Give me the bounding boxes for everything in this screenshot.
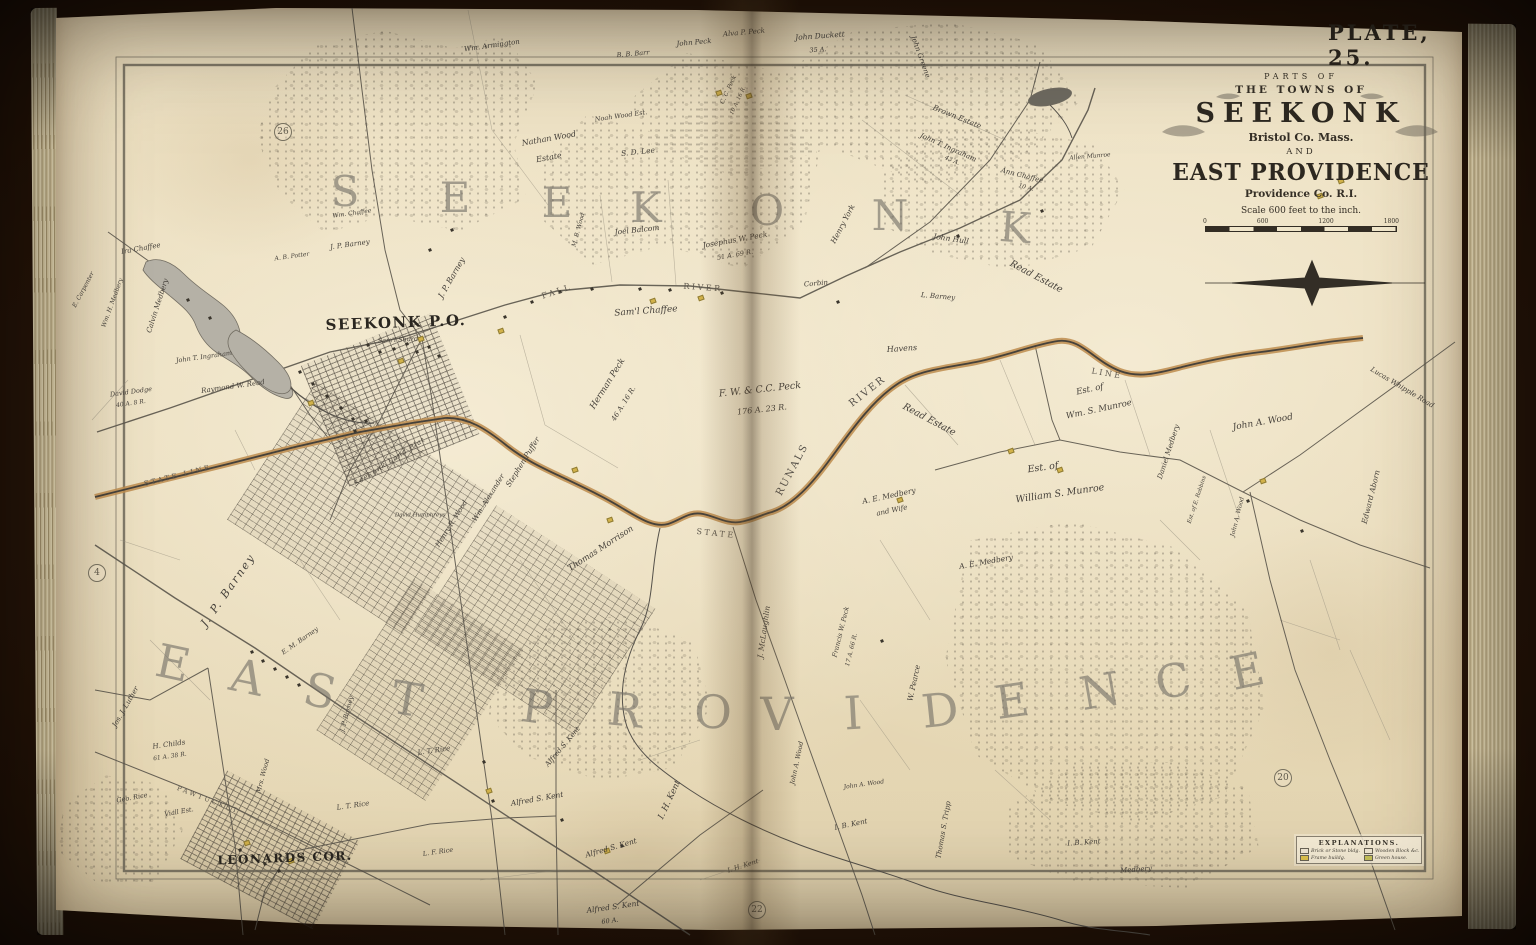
adjoining-plate-ref: 4 — [88, 564, 106, 582]
scale-tick-labels: 060012001800 — [1203, 218, 1399, 225]
state-line-highlight — [95, 338, 1363, 525]
cartouche-county-providence: Providence Co. R.I. — [1158, 188, 1444, 200]
legend-title: EXPLANATIONS. — [1300, 839, 1418, 847]
cartouche-parts-of: PARTS OF — [1158, 72, 1444, 81]
legend-item: Frame buildg. — [1300, 855, 1360, 861]
scale-bar: 060012001800 — [1203, 218, 1399, 232]
cartouche-county-bristol: Bristol Co. Mass. — [1158, 131, 1444, 144]
cartouche-town-seekonk: SEEKONK — [1158, 98, 1444, 129]
cartouche-and: AND — [1158, 147, 1444, 157]
scale-statement: Scale 600 feet to the inch. — [1158, 206, 1444, 216]
atlas-photo: SEEKONKEASTPROVIDENCESEEKONK P.O.LEONARD… — [0, 0, 1536, 945]
legend-label: Wooden Block &c. — [1375, 849, 1419, 854]
state-line-river — [95, 338, 1363, 525]
scale-tick: 0 — [1203, 218, 1207, 225]
adjoining-plate-ref: 20 — [1274, 769, 1292, 787]
compass-rose — [1205, 261, 1425, 305]
legend-item: Brick or Stone bldg. — [1300, 848, 1360, 854]
legend-swatch — [1300, 848, 1309, 854]
legend-entries: Brick or Stone bldg.Wooden Block &c.Fram… — [1300, 848, 1418, 861]
legend-item: Green house. — [1364, 855, 1419, 861]
legend-label: Brick or Stone bldg. — [1311, 849, 1360, 854]
legend-label: Green house. — [1375, 856, 1407, 861]
adjoining-plate-ref: 22 — [748, 901, 766, 919]
legend-swatch — [1364, 855, 1373, 861]
scale-tick: 600 — [1257, 218, 1268, 225]
scale-tick: 1200 — [1318, 218, 1333, 225]
legend-swatch — [1300, 855, 1309, 861]
legend-swatch — [1364, 848, 1373, 854]
plate-number: PLATE, 25. — [1328, 20, 1432, 70]
legend-item: Wooden Block &c. — [1364, 848, 1419, 854]
title-cartouche: PARTS OF THE TOWNS OF SEEKONK Bristol Co… — [1158, 72, 1444, 232]
adjoining-plate-ref: 26 — [274, 123, 292, 141]
legend-label: Frame buildg. — [1311, 856, 1345, 861]
runals-river-line — [95, 338, 1363, 525]
legend-box: EXPLANATIONS. Brick or Stone bldg.Wooden… — [1296, 836, 1422, 864]
scale-bar-segments — [1205, 226, 1397, 232]
scale-tick: 1800 — [1384, 218, 1399, 225]
cartouche-town-east-providence: EAST PROVIDENCE — [1165, 159, 1437, 186]
cartouche-towns-of: THE TOWNS OF — [1158, 84, 1444, 96]
